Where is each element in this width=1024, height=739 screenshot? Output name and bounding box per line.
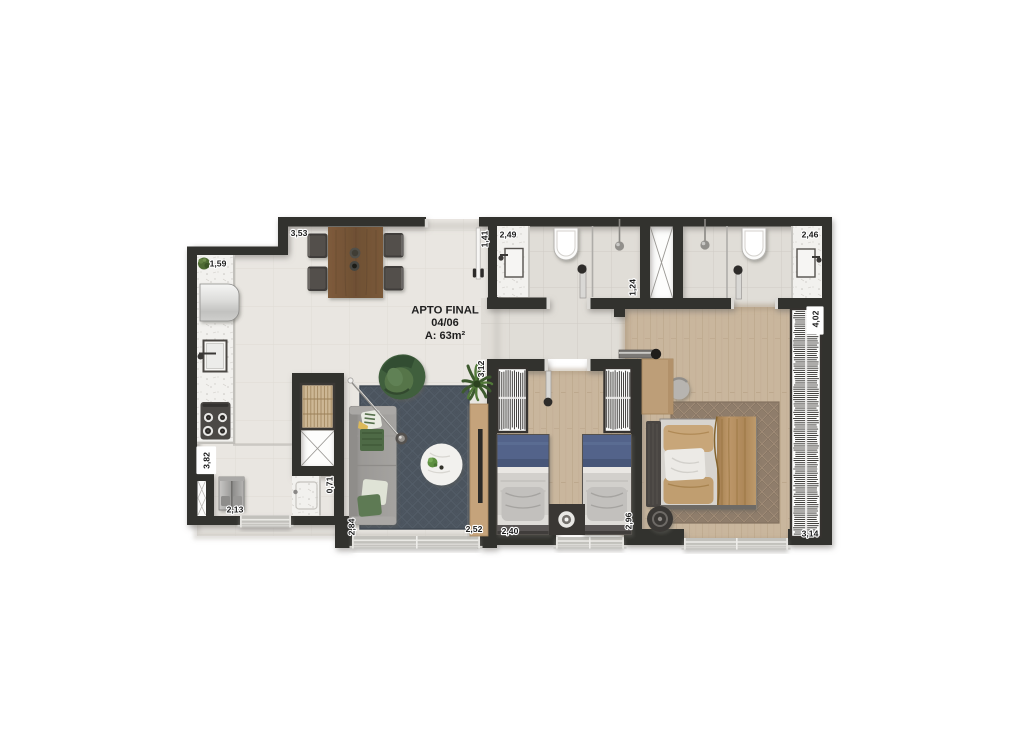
svg-text:3,82: 3,82 (202, 452, 212, 469)
svg-text:0,71: 0,71 (325, 476, 335, 493)
svg-text:3,53: 3,53 (291, 228, 308, 238)
svg-text:3,12: 3,12 (476, 360, 486, 377)
svg-text:2,13: 2,13 (227, 505, 244, 515)
svg-text:2,46: 2,46 (802, 230, 819, 240)
svg-text:2,52: 2,52 (466, 524, 483, 534)
svg-text:1,41: 1,41 (480, 230, 490, 247)
svg-text:04/06: 04/06 (431, 317, 459, 329)
svg-text:2,84: 2,84 (347, 518, 357, 535)
svg-text:1,24: 1,24 (628, 279, 638, 296)
svg-text:A: 63m²: A: 63m² (425, 330, 466, 342)
svg-text:3,14: 3,14 (802, 529, 819, 539)
svg-text:2,40: 2,40 (502, 526, 519, 536)
svg-text:1,59: 1,59 (210, 259, 227, 269)
svg-text:2,49: 2,49 (500, 230, 517, 240)
svg-text:APTO FINAL: APTO FINAL (411, 305, 479, 317)
svg-text:4,02: 4,02 (811, 310, 821, 327)
svg-text:2,96: 2,96 (624, 512, 634, 529)
